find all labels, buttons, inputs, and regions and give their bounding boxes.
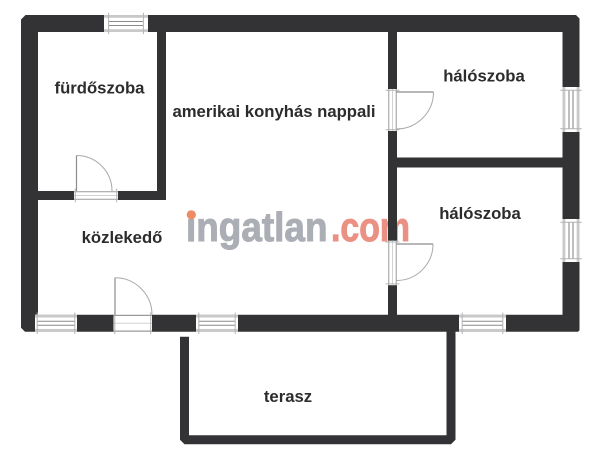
svg-text:terasz: terasz [264,387,312,406]
svg-text:hálószoba: hálószoba [439,204,521,223]
svg-text:hálószoba: hálószoba [443,67,525,86]
svg-text:fürdőszoba: fürdőszoba [55,79,146,98]
svg-text:.com: .com [331,204,410,250]
svg-text:amerikai konyhás nappali: amerikai konyhás nappali [172,102,375,121]
svg-text:ingatlan: ingatlan [186,204,328,250]
svg-text:közlekedő: közlekedő [82,228,163,247]
